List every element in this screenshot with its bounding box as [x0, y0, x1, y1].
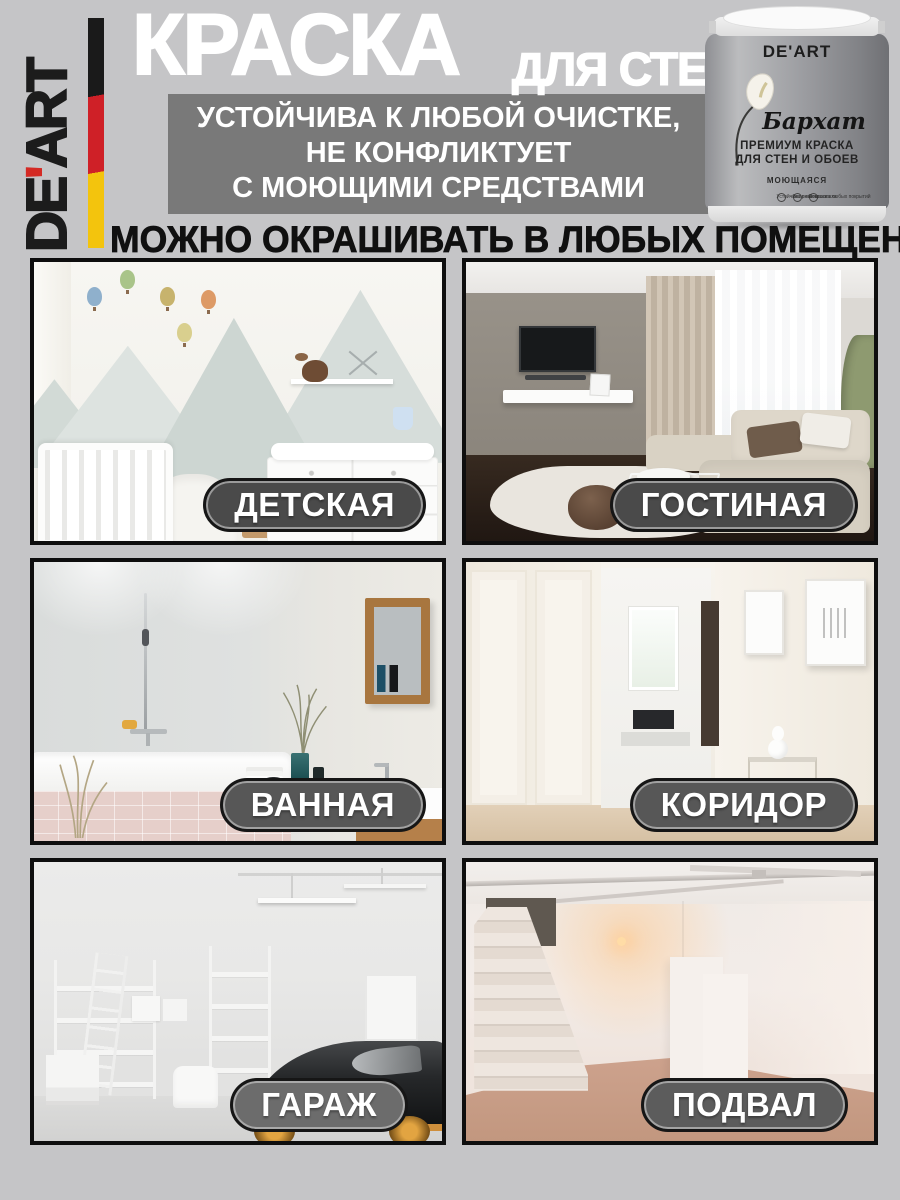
photo-grid: ДЕТСКАЯ [30, 258, 878, 1145]
brand-logo-part: ART [15, 60, 79, 168]
room-label-nursery: ДЕТСКАЯ [203, 478, 426, 532]
room-photo-corridor: КОРИДОР [462, 558, 878, 845]
german-flag-stripe-icon [88, 18, 104, 248]
balloon-mobile [177, 323, 192, 342]
tv [519, 326, 596, 372]
can-brand-label: DE'ART [703, 42, 891, 62]
can-series-name: Бархат [737, 108, 891, 135]
room-label-text: КОРИДОР [661, 786, 827, 824]
page-title: КРАСКА [132, 0, 459, 90]
room-photo-basement: ПОДВАЛ [462, 858, 878, 1145]
room-label-garage: ГАРАЖ [230, 1078, 408, 1132]
bath-mixer [130, 729, 167, 734]
balloon-mobile [160, 287, 175, 306]
storage-shelf [209, 946, 270, 1099]
window [629, 607, 678, 691]
hanging-light [258, 898, 356, 903]
feature-text: Покраска любых покрытий [809, 195, 871, 201]
picture-frame [744, 590, 785, 655]
room-photo-living-room: ГОСТИНАЯ [462, 258, 878, 545]
can-feature: Устойчива к мытью [777, 193, 786, 202]
claim-line: УСТОЙЧИВА К ЛЮБОЙ ОЧИСТКЕ, [168, 101, 709, 136]
moose-plush [302, 360, 328, 382]
light-rod [291, 873, 293, 898]
baby-outfit [393, 407, 413, 430]
duct-column [703, 974, 748, 1080]
room-photo-garage: ГАРАЖ [30, 858, 446, 1145]
brand-logo-part: DE [15, 179, 79, 252]
can-property: МОЮЩАЯСЯ [703, 176, 891, 185]
claim-line: НЕ КОНФЛИКТУЕТ [168, 136, 709, 171]
staircase [474, 907, 588, 1091]
paint-can: DE'ART Бархат ПРЕМИУМ КРАСКА ДЛЯ СТЕН И … [703, 4, 891, 226]
picture-frame [805, 579, 866, 667]
crib [38, 443, 173, 545]
wall-lamp [617, 937, 626, 946]
room-label-text: ГАРАЖ [261, 1086, 377, 1124]
room-label-corridor: КОРИДОР [630, 778, 858, 832]
ceiling-beam [238, 873, 442, 876]
grass-bouquet [254, 679, 352, 757]
picture-frame [590, 373, 611, 396]
room-label-text: ДЕТСКАЯ [234, 486, 395, 524]
changing-pad [271, 443, 434, 460]
can-features: Устойчива к мытью Без резкого запаха Пок… [713, 193, 881, 202]
room-label-basement: ПОДВАЛ [641, 1078, 848, 1132]
claim-badge: УСТОЙЧИВА К ЛЮБОЙ ОЧИСТКЕ, НЕ КОНФЛИКТУЕ… [168, 94, 709, 214]
brand-logo: DE'ART [14, 60, 80, 252]
rug [621, 732, 690, 746]
promo-banner: DE'ART КРАСКА ДЛЯ СТЕН УСТОЙЧИВА К ЛЮБОЙ… [0, 0, 900, 1200]
brand-logo-apostrophe: ' [15, 168, 79, 179]
can-feature: Покраска любых покрытий [809, 193, 818, 202]
hanging-light [344, 884, 426, 888]
crossed-arrows-decor [345, 348, 381, 378]
cushion [799, 413, 851, 449]
balloon-mobile [120, 270, 135, 289]
storage-box [163, 999, 187, 1021]
door [470, 570, 527, 804]
room-label-living-room: ГОСТИНАЯ [610, 478, 858, 532]
sponge [122, 720, 137, 729]
room-label-text: ВАННАЯ [251, 786, 395, 824]
room-label-text: ГОСТИНАЯ [641, 486, 827, 524]
pallet-boxes [46, 1055, 99, 1105]
shower-rail [144, 593, 147, 733]
storage-box [132, 996, 161, 1021]
door [535, 570, 592, 804]
right-wall [752, 901, 874, 1074]
room-photo-bathroom: ВАННАЯ [30, 558, 446, 845]
balloon-mobile [87, 287, 102, 306]
junction-box [752, 870, 766, 878]
can-type-line: ПРЕМИУМ КРАСКА [703, 140, 891, 152]
wall-rack [365, 974, 418, 1041]
bench [633, 710, 674, 730]
can-lid-top [723, 6, 871, 30]
room-label-text: ПОДВАЛ [672, 1086, 817, 1124]
curtain [646, 276, 715, 460]
claim-line: С МОЮЩИМИ СРЕДСТВАМИ [168, 171, 709, 206]
can-bottom-rim [708, 206, 886, 222]
soundbar [525, 375, 586, 380]
balloon-mobile [201, 290, 216, 309]
shower-head [142, 629, 149, 646]
dried-plant [42, 749, 132, 838]
wooden-mirror-cabinet [365, 598, 430, 704]
can-feature: Без резкого запаха [793, 193, 802, 202]
media-console [503, 390, 634, 403]
room-label-bathroom: ВАННАЯ [220, 778, 426, 832]
room-photo-nursery: ДЕТСКАЯ [30, 258, 446, 545]
white-vase [768, 739, 788, 759]
white-armchair [173, 1066, 218, 1108]
tall-cabinet [701, 601, 719, 746]
can-type-line: ДЛЯ СТЕН И ОБОЕВ [703, 154, 891, 166]
